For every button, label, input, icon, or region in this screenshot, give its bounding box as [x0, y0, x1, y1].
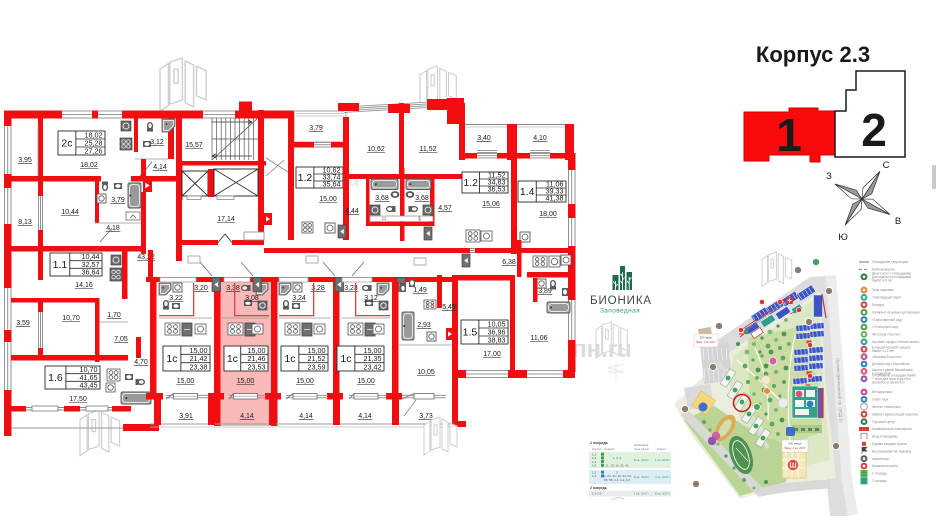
svg-text:1.4: 1.4: [520, 186, 535, 198]
svg-text:41,38: 41,38: [546, 194, 564, 203]
svg-text:Ключи: Ключи: [657, 447, 666, 451]
svg-text:1, 3, 4: 1, 3, 4: [613, 456, 622, 460]
svg-text:5,49: 5,49: [442, 304, 456, 311]
svg-text:8 кв. 2026 г.: 8 кв. 2026 г.: [634, 475, 650, 479]
svg-text:15,57: 15,57: [185, 142, 203, 149]
svg-text:срок сдачи: срок сдачи: [634, 447, 649, 451]
svg-text:1.2: 1.2: [463, 177, 478, 189]
svg-text:В: В: [895, 216, 901, 227]
svg-text:15,00: 15,00: [177, 378, 195, 385]
svg-text:1 кв. 2025 г.: 1 кв. 2025 г.: [655, 458, 671, 462]
svg-text:«Тайнственный сад»: «Тайнственный сад»: [872, 318, 903, 322]
svg-text:55, 58, 4.3, 4.4, 4.4: 55, 58, 4.3, 4.4, 4.4: [604, 478, 630, 482]
svg-text:1.6: 1.6: [48, 372, 63, 384]
svg-text:Зона парковки: Зона парковки: [872, 288, 894, 292]
svg-text:3,20: 3,20: [194, 285, 208, 292]
svg-text:6,38: 6,38: [502, 259, 516, 266]
svg-text:1,70: 1,70: [107, 312, 121, 319]
svg-text:Кабинет врача общей практики: Кабинет врача общей практики: [872, 412, 918, 416]
svg-text:Беседка: Беседка: [872, 303, 884, 307]
svg-text:3,12: 3,12: [364, 295, 378, 302]
svg-text:17,14: 17,14: [217, 216, 235, 223]
svg-text:Вход в парадную: Вход в парадную: [872, 435, 898, 439]
svg-text:1с: 1с: [166, 353, 177, 365]
svg-text:1.5: 1.5: [592, 464, 597, 468]
svg-text:З: З: [826, 171, 832, 182]
svg-text:1,49: 1,49: [413, 287, 427, 294]
svg-text:23,38: 23,38: [190, 363, 208, 372]
svg-text:Корпус 2.3: Корпус 2.3: [756, 42, 870, 67]
svg-text:7,05: 7,05: [114, 336, 128, 343]
svg-text:18,02: 18,02: [80, 162, 98, 169]
svg-text:2.1-2.5: 2.1-2.5: [592, 492, 602, 496]
svg-text:Секция: Секция: [604, 447, 615, 451]
svg-text:С: С: [883, 160, 890, 171]
svg-text:43,45: 43,45: [80, 381, 98, 390]
svg-text:Торговый центр: Торговый центр: [872, 420, 896, 424]
svg-text:«Машина Берготта»: «Машина Берготта»: [872, 355, 902, 359]
svg-text:2 очередь: 2 очередь: [590, 486, 607, 490]
svg-text:3,73: 3,73: [419, 413, 433, 420]
svg-text:3,24: 3,24: [292, 295, 306, 302]
svg-text:3,08: 3,08: [245, 295, 259, 302]
svg-text:Ввод: 4 кв. 2027: Ввод: 4 кв. 2027: [785, 446, 806, 450]
svg-text:3,79: 3,79: [309, 125, 323, 132]
svg-text:8 кв. 2024 г.: 8 кв. 2024 г.: [634, 458, 650, 462]
svg-text:4,14: 4,14: [299, 413, 313, 420]
svg-text:3,89: 3,89: [538, 288, 552, 295]
svg-text:38,83: 38,83: [488, 336, 506, 345]
svg-text:10,05: 10,05: [417, 369, 435, 376]
svg-text:1 очередь: 1 очередь: [590, 441, 609, 445]
svg-text:3,12: 3,12: [150, 139, 164, 146]
svg-text:бамбл 4-12 лет: бамбл 4-12 лет: [872, 349, 895, 353]
svg-text:4,44: 4,44: [345, 208, 359, 215]
svg-text:27,26: 27,26: [85, 147, 103, 156]
svg-text:4,57: 4,57: [438, 205, 452, 212]
svg-text:4,14: 4,14: [358, 413, 372, 420]
svg-text:18,00: 18,00: [539, 211, 557, 218]
svg-text:23,42: 23,42: [364, 363, 382, 372]
svg-text:Велодорожка: Велодорожка: [872, 390, 892, 394]
svg-text:волейбол и баскетбол: волейбол и баскетбол: [872, 381, 905, 385]
svg-text:«Сенсорный сад»: «Сенсорный сад»: [872, 325, 899, 329]
svg-text:Фитозона «Лесток»: Фитозона «Лесток»: [872, 333, 901, 337]
svg-text:БИОНИКА: БИОНИКА: [590, 295, 652, 307]
svg-text:1с: 1с: [340, 353, 351, 365]
svg-text:11,52: 11,52: [420, 146, 437, 153]
svg-text:3,91: 3,91: [179, 413, 193, 420]
svg-text:1 очередь: 1 очередь: [872, 472, 887, 476]
svg-text:14,16: 14,16: [75, 282, 93, 289]
svg-text:1.5: 1.5: [463, 327, 478, 339]
svg-text:Лабиринт из живых кустарников: Лабиринт из живых кустарников: [872, 310, 920, 314]
svg-text:Ш: Ш: [789, 463, 796, 470]
svg-text:15,00: 15,00: [319, 196, 337, 203]
svg-text:2с: 2с: [61, 138, 72, 150]
svg-text:3,79: 3,79: [111, 197, 125, 204]
svg-text:8,13: 8,13: [18, 219, 32, 226]
svg-text:3,68: 3,68: [415, 195, 429, 202]
svg-text:Игровой городок «Новая жизнь»: Игровой городок «Новая жизнь»: [872, 340, 920, 344]
svg-text:2,93: 2,93: [417, 322, 431, 329]
svg-text:15,06: 15,06: [482, 201, 500, 208]
svg-text:4,10: 4,10: [533, 135, 547, 142]
svg-text:4,14: 4,14: [240, 413, 254, 420]
svg-text:23,59: 23,59: [308, 363, 326, 372]
svg-text:500 кварт: 500 кварт: [788, 442, 802, 446]
svg-text:1с: 1с: [284, 353, 295, 365]
svg-text:1.2: 1.2: [298, 172, 313, 184]
svg-text:3,22: 3,22: [169, 295, 183, 302]
svg-text:бамбл 4-6 лет: бамбл 4-6 лет: [872, 279, 893, 283]
svg-text:15,00: 15,00: [357, 378, 375, 385]
svg-text:35,64: 35,64: [323, 180, 341, 189]
svg-text:Ю: Ю: [838, 232, 848, 243]
svg-text:4,14: 4,14: [153, 164, 167, 171]
svg-text:Комьюнити центр: Комьюнити центр: [872, 464, 898, 468]
svg-text:«Заповедный парк»: «Заповедный парк»: [872, 296, 902, 300]
svg-text:3,59: 3,59: [16, 320, 30, 327]
svg-text:Амфитеатр: Амфитеатр: [872, 457, 889, 461]
svg-text:10,62: 10,62: [367, 146, 385, 153]
svg-text:1.4: 1.4: [592, 474, 597, 478]
svg-text:17,00: 17,00: [483, 351, 501, 358]
svg-text:Заповедная: Заповедная: [600, 308, 640, 315]
svg-text:3,68: 3,68: [375, 195, 389, 202]
svg-text:3,38: 3,38: [226, 285, 240, 292]
svg-text:Ограждение территории: Ограждение территории: [872, 260, 908, 264]
svg-text:8 кв. 2027 г.: 8 кв. 2027 г.: [655, 492, 671, 496]
svg-text:4,70: 4,70: [134, 359, 148, 366]
svg-text:36,53: 36,53: [488, 185, 506, 194]
svg-text:Детский сад с бассейном: Детский сад с бассейном: [872, 362, 909, 366]
svg-text:пн.ru: пн.ru: [572, 336, 632, 363]
svg-text:1: 1: [776, 109, 802, 161]
svg-text:Скейт парк: Скейт парк: [872, 398, 889, 402]
svg-text:3,95: 3,95: [18, 157, 32, 164]
svg-text:1 кв. 2027 г.: 1 кв. 2027 г.: [634, 492, 650, 496]
svg-text:17,50: 17,50: [69, 396, 87, 403]
svg-text:11, 13, 14, 31, 41: 11, 13, 14, 31, 41: [605, 464, 628, 468]
svg-text:Корпус: Корпус: [592, 447, 602, 451]
svg-text:Единая входная группа: Единая входная группа: [872, 442, 907, 446]
svg-text:4,18: 4,18: [106, 225, 120, 232]
svg-text:2: 2: [861, 104, 887, 156]
svg-text:2 очередь: 2 очередь: [872, 479, 887, 483]
svg-text:Фонтан «Восленок»: Фонтан «Восленок»: [872, 405, 902, 409]
svg-text:10,44: 10,44: [61, 209, 79, 216]
svg-text:Ввод: 1 кв. 2027: Ввод: 1 кв. 2027: [696, 340, 716, 344]
svg-text:300 кварт: 300 кварт: [700, 336, 714, 340]
svg-text:Выгружаемый на парковку: Выгружаемый на парковку: [872, 449, 912, 453]
svg-text:4 кв. 2027 г.: 4 кв. 2027 г.: [655, 475, 671, 479]
svg-text:15,00: 15,00: [237, 378, 255, 385]
svg-text:36,64: 36,64: [82, 268, 100, 277]
svg-text:1.1: 1.1: [53, 259, 68, 271]
svg-text:11,06: 11,06: [531, 335, 548, 342]
svg-text:15,00: 15,00: [296, 378, 314, 385]
svg-text:10,70: 10,70: [62, 315, 80, 322]
svg-text:1с: 1с: [227, 353, 238, 365]
svg-text:3,40: 3,40: [477, 135, 491, 142]
svg-text:23,53: 23,53: [248, 363, 266, 372]
svg-text:Коммерческие помещения: Коммерческие помещения: [872, 427, 912, 431]
